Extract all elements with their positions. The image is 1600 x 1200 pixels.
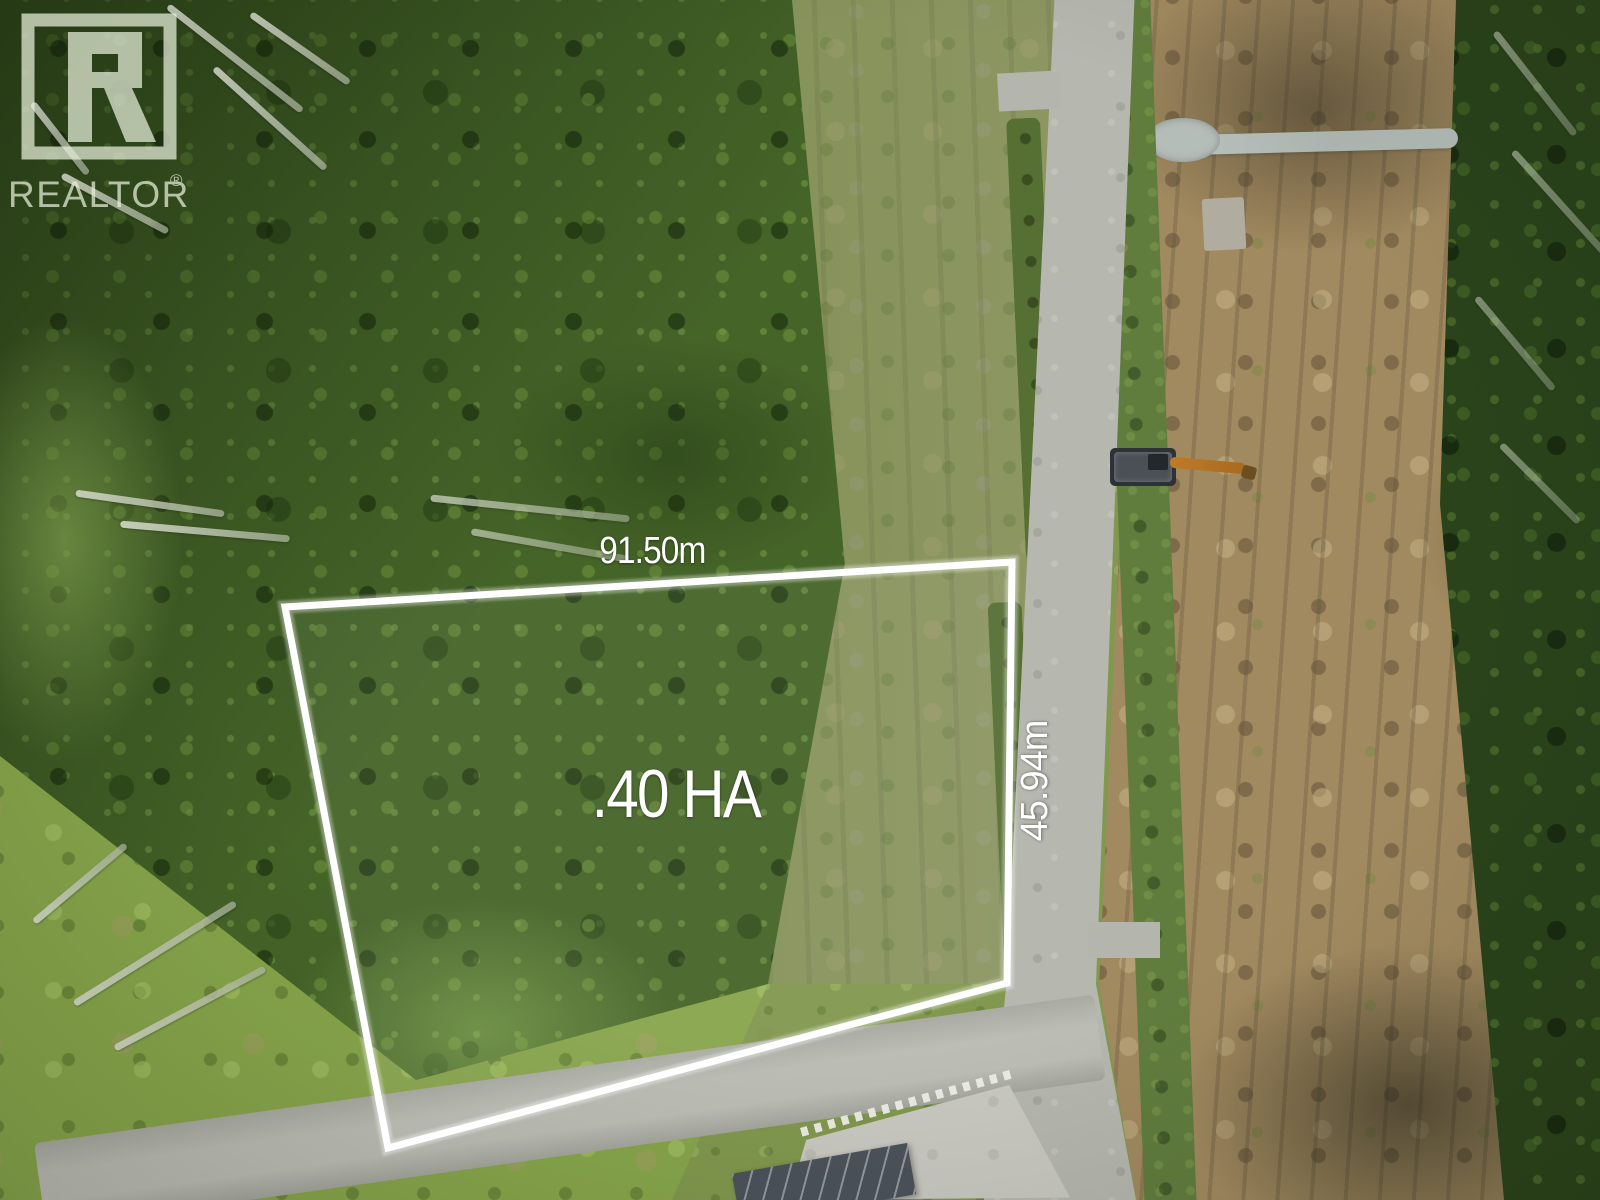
realtor-logo-r-icon [68,32,156,142]
realtor-watermark: REALTOR ® [0,0,230,230]
frontage-dimension-label: 91.50m [599,530,705,573]
lot-area-label: .40 HA [592,755,760,833]
lot-boundary-line [285,562,1012,1148]
aerial-photo: 91.50m .40 HA 45.94m REALTOR ® [0,0,1600,1200]
depth-dimension-label: 45.94m [955,701,1115,861]
lot-boundary-overlay [0,0,1600,1200]
registered-trademark-symbol: ® [170,171,183,190]
realtor-wordmark: REALTOR [8,174,190,215]
depth-dimension-text: 45.94m [1014,721,1057,842]
